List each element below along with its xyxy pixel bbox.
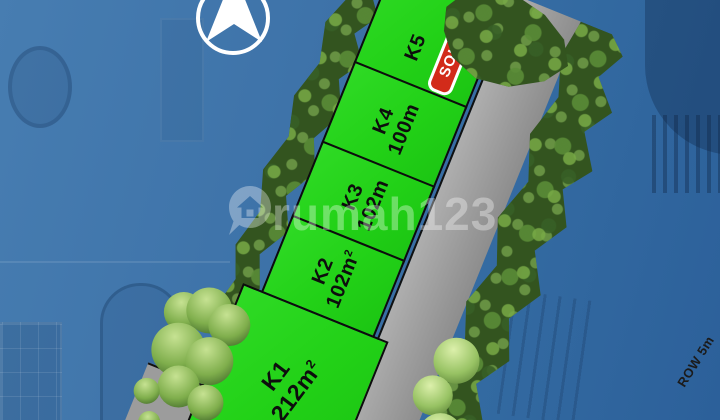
rumah123-pin-icon	[227, 185, 273, 237]
brand-watermark: rumah123	[272, 191, 497, 237]
house-window-grid-shape	[0, 322, 62, 420]
site-plan-image: ROW 5m K5 SOLD K4 100m K3 102m K2 102m2 …	[0, 0, 720, 420]
house-railing-shape	[652, 115, 720, 193]
road-width-label: ROW 5m	[674, 333, 717, 389]
house-right-arch-shape	[645, 0, 720, 155]
north-arrow-icon	[188, 0, 280, 66]
house-oval-window-shape	[8, 46, 72, 128]
